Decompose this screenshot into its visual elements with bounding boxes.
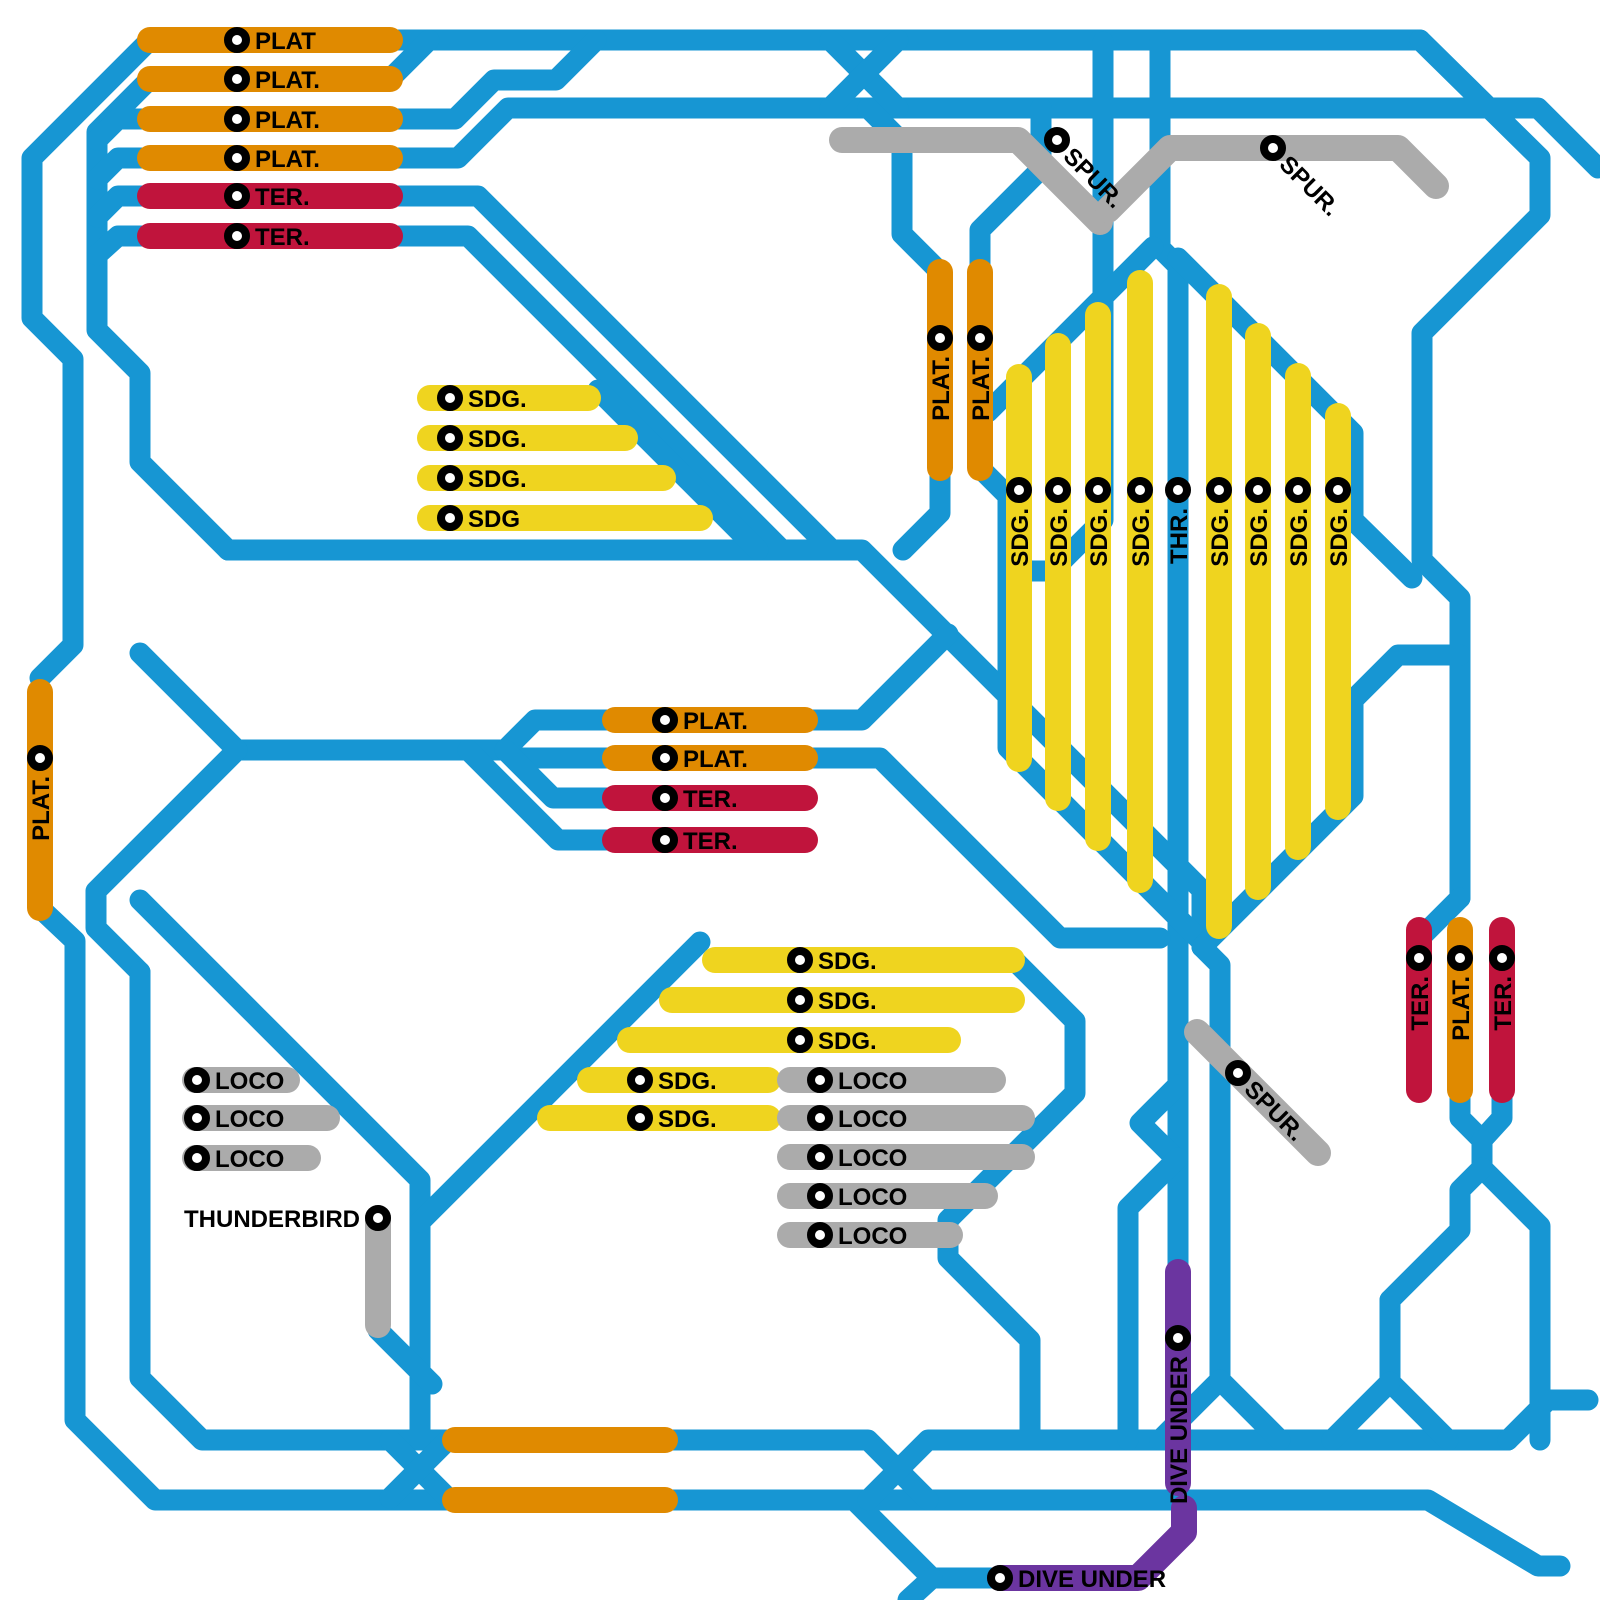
station-node[interactable] xyxy=(931,329,949,347)
track-segment xyxy=(140,653,237,750)
station-node[interactable] xyxy=(1410,949,1428,967)
station-node[interactable] xyxy=(228,110,246,128)
station-label: SDG. xyxy=(658,1106,717,1133)
station-node[interactable] xyxy=(656,711,674,729)
station-label: PLAT. xyxy=(683,746,748,773)
station-node[interactable] xyxy=(1329,481,1347,499)
station-label: PLAT. xyxy=(28,776,55,841)
station-label: TER. xyxy=(255,224,310,251)
station-label: SDG. xyxy=(658,1068,717,1095)
station-node[interactable] xyxy=(1289,481,1307,499)
station-node[interactable] xyxy=(656,749,674,767)
station-node[interactable] xyxy=(631,1071,649,1089)
station-label: SDG. xyxy=(1246,508,1273,567)
track-segment xyxy=(1482,1140,1540,1440)
station-label: PLAT. xyxy=(255,146,320,173)
station-label: SDG. xyxy=(818,988,877,1015)
station-label: THUNDERBIRD xyxy=(184,1206,360,1233)
station-node[interactable] xyxy=(441,469,459,487)
station-label: LOCO xyxy=(838,1223,907,1250)
station-node[interactable] xyxy=(228,187,246,205)
track-segment xyxy=(903,468,940,550)
station-node[interactable] xyxy=(31,749,49,767)
station-label: LOCO xyxy=(838,1145,907,1172)
station-label: LOCO xyxy=(215,1106,284,1133)
station-label: SDG. xyxy=(1207,508,1234,567)
station-node[interactable] xyxy=(971,329,989,347)
station-node[interactable] xyxy=(228,227,246,245)
station-label: SDG. xyxy=(818,948,877,975)
station-label: TER. xyxy=(683,828,738,855)
station-node[interactable] xyxy=(656,789,674,807)
station-node[interactable] xyxy=(228,70,246,88)
station-label: SDG. xyxy=(818,1028,877,1055)
station-label: TER. xyxy=(255,184,310,211)
station-label: THR. xyxy=(1166,508,1193,564)
station-label: SDG. xyxy=(1086,508,1113,567)
station-layer xyxy=(40,40,1502,1578)
station-bar-spur[interactable] xyxy=(842,140,1100,222)
station-label: TER. xyxy=(683,786,738,813)
station-node[interactable] xyxy=(791,1031,809,1049)
station-node[interactable] xyxy=(791,991,809,1009)
station-label: SPUR. xyxy=(1239,1076,1310,1147)
station-node[interactable] xyxy=(1229,1064,1247,1082)
station-label: PLAT. xyxy=(255,107,320,134)
track-segment xyxy=(1202,947,1220,1274)
station-node[interactable] xyxy=(1169,1329,1187,1347)
track-segment xyxy=(805,634,948,720)
station-node[interactable] xyxy=(1210,481,1228,499)
station-node[interactable] xyxy=(1131,481,1149,499)
track-segment xyxy=(908,1578,932,1600)
station-label: PLAT xyxy=(255,28,316,55)
station-label: SPUR. xyxy=(1274,151,1345,222)
station-node[interactable] xyxy=(188,1109,206,1127)
station-node[interactable] xyxy=(811,1187,829,1205)
station-label: SDG. xyxy=(468,386,527,413)
station-label: LOCO xyxy=(838,1068,907,1095)
track-segment xyxy=(665,1500,1560,1566)
station-label: TER. xyxy=(1407,976,1434,1031)
track-map-canvas: PLATPLAT.PLAT.PLAT.TER.TER.SDG.SDG.SDG.S… xyxy=(0,0,1600,1600)
station-node[interactable] xyxy=(1493,949,1511,967)
station-node[interactable] xyxy=(811,1071,829,1089)
station-node[interactable] xyxy=(791,951,809,969)
station-node[interactable] xyxy=(188,1071,206,1089)
station-node[interactable] xyxy=(228,31,246,49)
station-node[interactable] xyxy=(631,1109,649,1127)
station-label: SDG. xyxy=(1326,508,1353,567)
station-node[interactable] xyxy=(1451,949,1469,967)
track-segment xyxy=(1390,1300,1448,1440)
station-node[interactable] xyxy=(656,831,674,849)
station-label: LOCO xyxy=(215,1146,284,1173)
station-label: LOCO xyxy=(215,1068,284,1095)
station-node[interactable] xyxy=(1169,481,1187,499)
station-node[interactable] xyxy=(441,509,459,527)
station-node[interactable] xyxy=(811,1226,829,1244)
station-node[interactable] xyxy=(991,1569,1009,1587)
station-node[interactable] xyxy=(1264,139,1282,157)
station-label: TER. xyxy=(1490,976,1517,1031)
track-segment xyxy=(1390,1168,1482,1300)
station-label: PLAT. xyxy=(968,356,995,421)
station-label: PLAT. xyxy=(683,708,748,735)
station-label: DIVE UNDER xyxy=(1018,1566,1166,1593)
track-layer xyxy=(32,40,1598,1600)
station-label: DIVE UNDER xyxy=(1166,1356,1193,1504)
track-segment xyxy=(1420,40,1540,898)
station-node[interactable] xyxy=(441,429,459,447)
station-node[interactable] xyxy=(188,1149,206,1167)
station-label: SDG. xyxy=(1046,508,1073,567)
station-node[interactable] xyxy=(1089,481,1107,499)
station-node[interactable] xyxy=(228,149,246,167)
station-node[interactable] xyxy=(369,1209,387,1227)
station-node[interactable] xyxy=(811,1148,829,1166)
station-node[interactable] xyxy=(1010,481,1028,499)
station-label: LOCO xyxy=(838,1106,907,1133)
station-label: SDG. xyxy=(1007,508,1034,567)
station-label: SDG. xyxy=(1286,508,1313,567)
station-label: SDG. xyxy=(1128,508,1155,567)
station-node[interactable] xyxy=(1249,481,1267,499)
station-node[interactable] xyxy=(1048,131,1066,149)
station-node[interactable] xyxy=(1049,481,1067,499)
station-node[interactable] xyxy=(441,389,459,407)
station-node[interactable] xyxy=(811,1109,829,1127)
station-label: SDG. xyxy=(468,426,527,453)
track-segment xyxy=(854,1500,1000,1578)
rail-network-diagram: PLATPLAT.PLAT.PLAT.TER.TER.SDG.SDG.SDG.S… xyxy=(0,0,1600,1600)
station-label: PLAT. xyxy=(255,67,320,94)
station-label: PLAT. xyxy=(1448,976,1475,1041)
track-segment xyxy=(505,720,615,750)
station-label: SDG. xyxy=(468,466,527,493)
station-label: SDG xyxy=(468,506,520,533)
station-label: PLAT. xyxy=(928,356,955,421)
station-label: LOCO xyxy=(838,1184,907,1211)
